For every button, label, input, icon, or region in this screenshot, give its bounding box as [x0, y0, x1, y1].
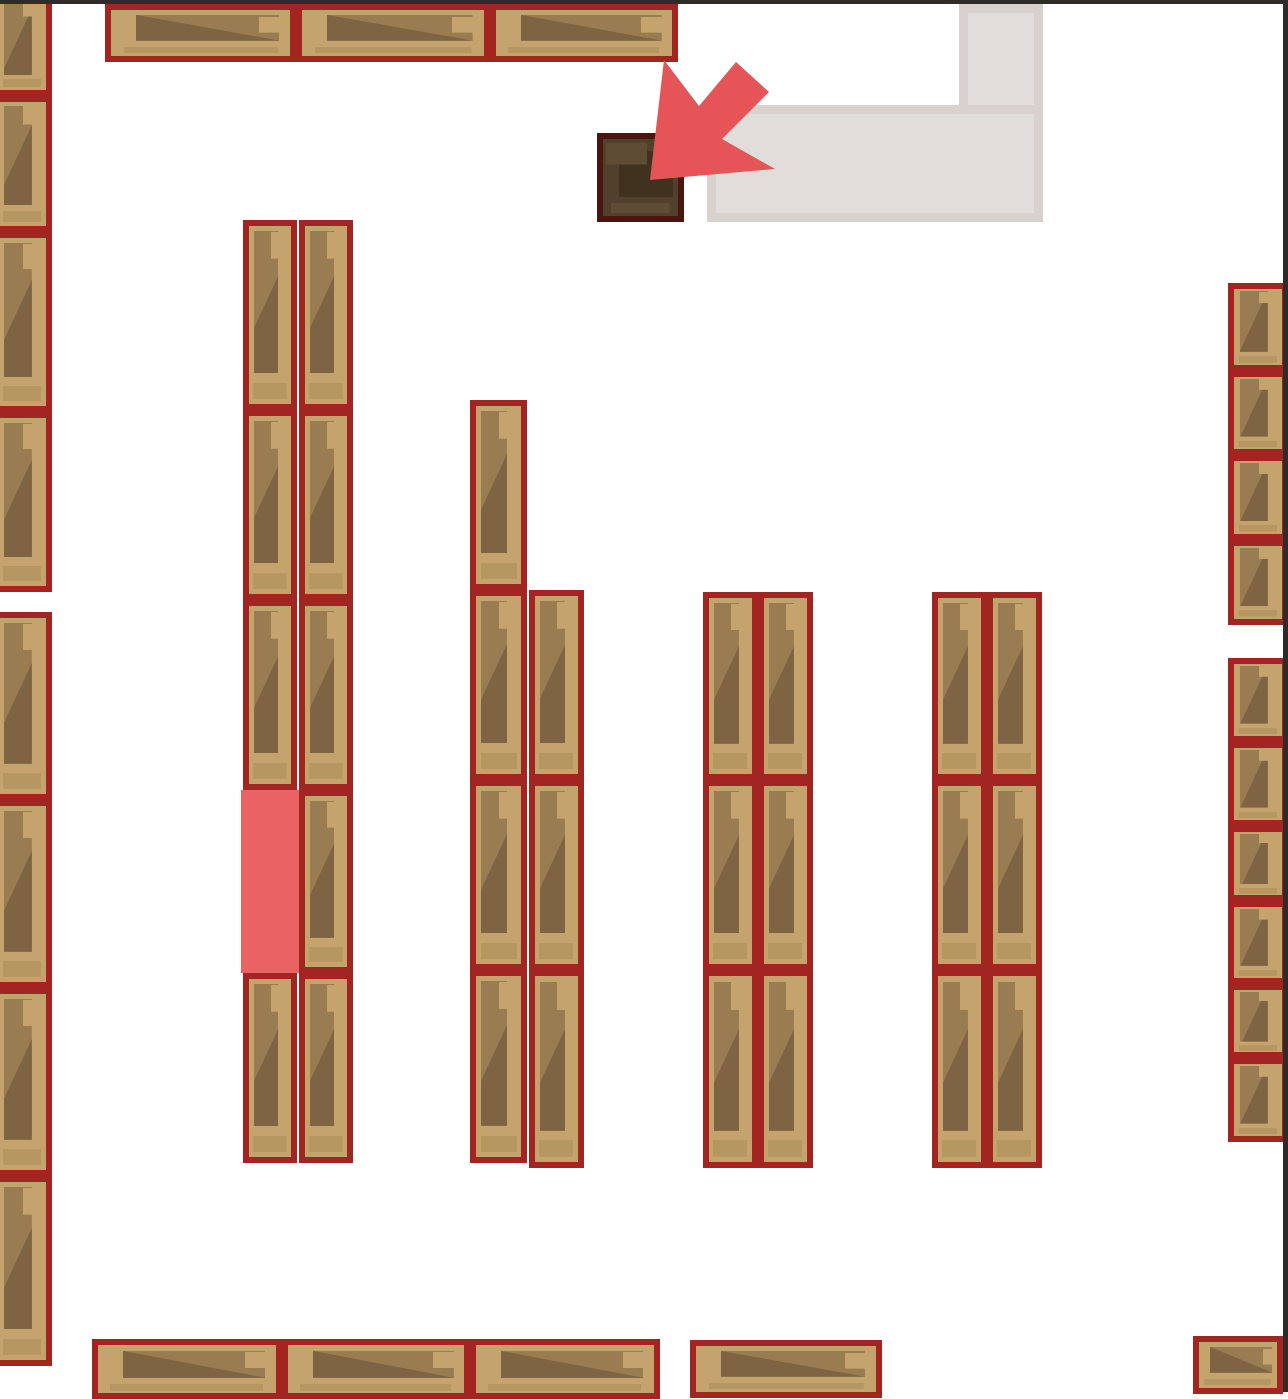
shelf-vertical[interactable] [0, 800, 52, 988]
shelf-vertical[interactable] [243, 220, 297, 410]
shelf-vertical[interactable] [1228, 540, 1288, 625]
shelf-horizontal[interactable] [690, 1340, 882, 1398]
shelf-vertical[interactable] [1228, 984, 1288, 1058]
shelf-vertical[interactable] [0, 96, 52, 232]
shelf-horizontal[interactable] [470, 1339, 660, 1399]
dark-counter-tile[interactable] [597, 133, 684, 222]
shelf-vertical[interactable] [299, 973, 353, 1163]
shelf-horizontal[interactable] [105, 4, 296, 62]
shelf-vertical[interactable] [299, 220, 353, 410]
highlighted-shelf-slot[interactable] [241, 790, 299, 973]
shelf-vertical[interactable] [758, 592, 813, 780]
shelf-vertical[interactable] [0, 988, 52, 1176]
shelf-vertical[interactable] [1228, 826, 1288, 901]
shelf-vertical[interactable] [299, 600, 353, 790]
shelf-vertical[interactable] [1228, 1058, 1288, 1142]
shelf-vertical[interactable] [243, 410, 297, 600]
shelf-vertical[interactable] [1228, 455, 1288, 540]
shelf-vertical[interactable] [470, 970, 527, 1163]
shelf-horizontal[interactable] [1193, 1336, 1283, 1394]
shelf-vertical[interactable] [470, 780, 527, 970]
shelf-vertical[interactable] [470, 400, 527, 590]
shelf-vertical[interactable] [703, 780, 758, 970]
shelf-vertical[interactable] [299, 790, 353, 973]
shelf-vertical[interactable] [758, 780, 813, 970]
shelf-vertical[interactable] [987, 780, 1042, 970]
shelf-vertical[interactable] [529, 970, 584, 1168]
shelf-vertical[interactable] [703, 970, 758, 1168]
shelf-vertical[interactable] [243, 600, 297, 790]
shelf-vertical[interactable] [0, 0, 52, 96]
shelf-horizontal[interactable] [490, 4, 678, 62]
shelf-vertical[interactable] [299, 410, 353, 600]
shelf-vertical[interactable] [932, 780, 987, 970]
shelf-vertical[interactable] [932, 592, 987, 780]
store-map [0, 0, 1288, 1392]
shelf-vertical[interactable] [987, 592, 1042, 780]
shelf-vertical[interactable] [1228, 742, 1288, 826]
shelf-vertical[interactable] [1228, 371, 1288, 455]
shelf-vertical[interactable] [0, 1176, 52, 1366]
shelf-vertical[interactable] [1228, 901, 1288, 984]
shelf-vertical[interactable] [0, 612, 52, 800]
shelf-vertical[interactable] [932, 970, 987, 1168]
map-edge-top [0, 0, 1288, 4]
corridor-floor [707, 105, 1043, 222]
shelf-vertical[interactable] [529, 590, 584, 780]
shelf-vertical[interactable] [1228, 658, 1288, 742]
shelf-horizontal[interactable] [296, 4, 490, 62]
shelf-vertical[interactable] [529, 780, 584, 970]
shelf-vertical[interactable] [758, 970, 813, 1168]
shelf-vertical[interactable] [470, 590, 527, 780]
shelf-vertical[interactable] [243, 973, 297, 1163]
shelf-vertical[interactable] [1228, 283, 1288, 371]
shelf-vertical[interactable] [987, 970, 1042, 1168]
shelf-horizontal[interactable] [282, 1339, 470, 1399]
shelf-vertical[interactable] [0, 412, 52, 592]
map-edge-right [1283, 0, 1288, 1392]
shelf-vertical[interactable] [703, 592, 758, 780]
shelf-vertical[interactable] [0, 232, 52, 412]
shelf-horizontal[interactable] [92, 1339, 282, 1399]
